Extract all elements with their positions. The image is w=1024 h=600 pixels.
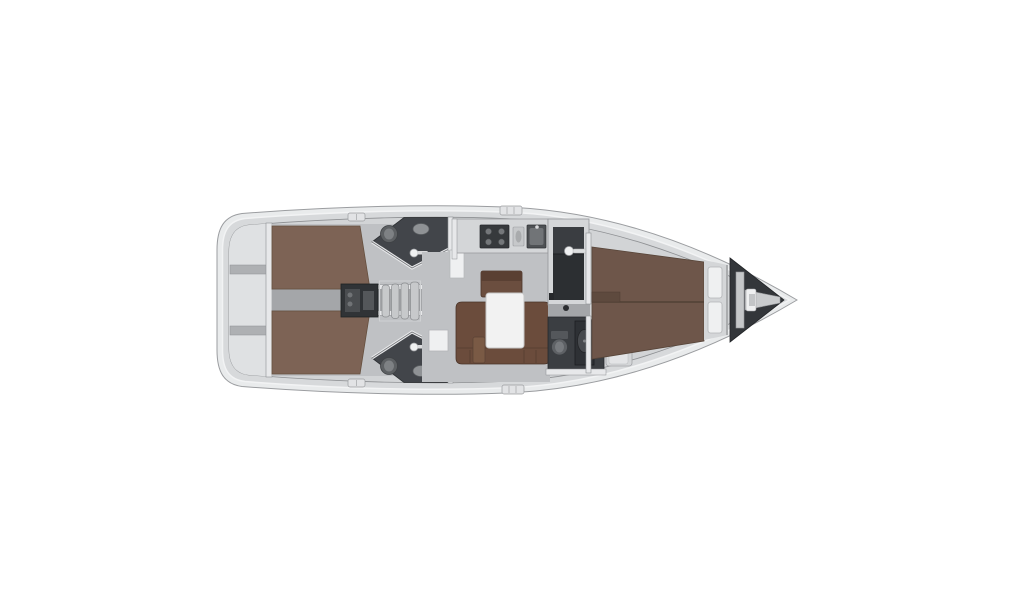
salon-stool xyxy=(473,337,485,363)
stove-burner-2 xyxy=(499,229,505,235)
forward-passage-floor xyxy=(548,304,590,318)
shower-drain xyxy=(583,340,586,343)
companionway-step-1 xyxy=(382,285,390,317)
companionway-step-4 xyxy=(411,282,420,320)
door-handle-stem-wardrobe xyxy=(573,249,587,253)
forward-head-outer-wall xyxy=(546,369,606,375)
stove-burner-1 xyxy=(486,229,492,235)
deck-hatch-aft-port xyxy=(348,213,365,221)
galley-faucet xyxy=(535,225,539,229)
deck-hatch-mid-port xyxy=(500,206,522,215)
stove-burner-3 xyxy=(486,239,492,245)
stern-bulkhead-wall xyxy=(266,223,272,377)
stern-shelf-port xyxy=(230,265,268,274)
engine-pulley-2 xyxy=(348,302,353,307)
galley-left-wall xyxy=(452,219,457,259)
galley-board-basin xyxy=(516,231,522,243)
engine-pulley-1 xyxy=(348,293,353,298)
salon-cabinet-white xyxy=(429,330,448,351)
toilet-tank-forward xyxy=(551,331,568,339)
wardrobe-latch xyxy=(549,293,554,300)
anchor-fitting-notch xyxy=(749,294,755,306)
anchor-locker-rib xyxy=(736,272,744,328)
deck-hatch-mid-starboard xyxy=(502,385,524,394)
aft-berth-starboard xyxy=(272,311,370,374)
salon-bench-backrest xyxy=(481,271,522,281)
salon-table xyxy=(486,293,524,348)
galley-stove xyxy=(480,225,509,248)
bow-locker-door-port xyxy=(708,267,722,298)
mast-foot xyxy=(563,305,569,311)
toilet-bowl-aft-starboard xyxy=(384,361,394,372)
forward-bulkhead-lower xyxy=(586,316,591,373)
door-handle-wardrobe xyxy=(565,247,574,256)
engine-block xyxy=(345,289,360,312)
forward-berth xyxy=(592,247,704,359)
forward-bulkhead-upper xyxy=(586,233,591,304)
bow-locker-door-starboard xyxy=(708,302,722,333)
stern-shelf-starboard xyxy=(230,326,268,335)
deck-hatch-aft-starboard xyxy=(348,379,365,387)
door-handle-aft-port xyxy=(410,249,418,257)
engine-housing xyxy=(363,291,374,310)
galley-sink-basin xyxy=(530,228,544,245)
door-handle-aft-starboard xyxy=(410,343,418,351)
yacht-floorplan-image xyxy=(0,0,1024,600)
companionway-step-2 xyxy=(392,284,400,319)
floorplan-canvas xyxy=(0,0,1024,600)
forward-berth-step xyxy=(592,292,620,302)
companionway-step-3 xyxy=(401,283,409,319)
stern-lazarette xyxy=(229,224,268,377)
toilet-bowl-forward xyxy=(555,342,564,353)
aft-berth-port xyxy=(272,226,370,289)
toilet-bowl-aft-port xyxy=(384,229,394,240)
sink-aft-port xyxy=(413,224,429,235)
stove-burner-4 xyxy=(499,239,505,245)
